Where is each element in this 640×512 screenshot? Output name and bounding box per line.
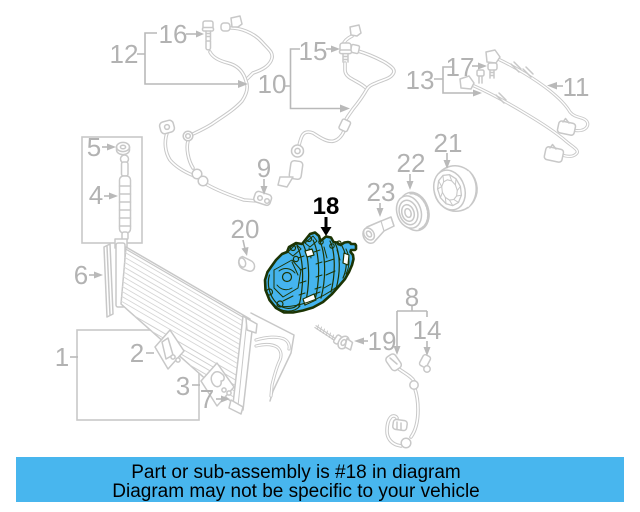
svg-text:3: 3 bbox=[176, 371, 190, 401]
svg-text:19: 19 bbox=[368, 326, 397, 356]
svg-text:17: 17 bbox=[446, 52, 475, 82]
svg-text:1: 1 bbox=[55, 342, 69, 372]
svg-text:23: 23 bbox=[367, 177, 396, 207]
svg-text:9: 9 bbox=[257, 153, 271, 183]
svg-text:7: 7 bbox=[200, 384, 214, 414]
svg-text:5: 5 bbox=[87, 132, 101, 162]
svg-text:22: 22 bbox=[397, 148, 426, 178]
svg-text:Part or sub-assembly is #18 in: Part or sub-assembly is #18 in diagram bbox=[131, 462, 460, 483]
svg-text:21: 21 bbox=[434, 128, 463, 158]
svg-text:6: 6 bbox=[74, 260, 88, 290]
svg-text:Diagram may not be specific to: Diagram may not be specific to your vehi… bbox=[112, 481, 480, 502]
svg-text:16: 16 bbox=[159, 19, 188, 49]
svg-text:10: 10 bbox=[258, 69, 287, 99]
svg-text:18: 18 bbox=[313, 193, 340, 220]
svg-text:15: 15 bbox=[299, 36, 328, 66]
svg-text:2: 2 bbox=[130, 338, 144, 368]
svg-text:20: 20 bbox=[231, 214, 260, 244]
svg-text:11: 11 bbox=[563, 72, 590, 102]
svg-text:4: 4 bbox=[89, 180, 103, 210]
svg-text:13: 13 bbox=[406, 65, 435, 95]
svg-text:12: 12 bbox=[110, 39, 139, 69]
svg-text:8: 8 bbox=[405, 282, 419, 312]
svg-text:14: 14 bbox=[413, 315, 442, 345]
